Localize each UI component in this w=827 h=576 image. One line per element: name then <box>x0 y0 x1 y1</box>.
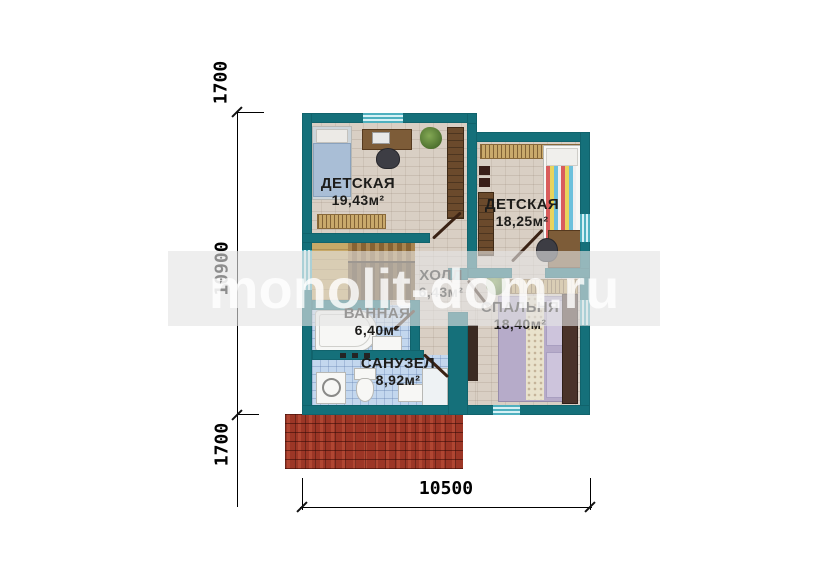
radiator-icon <box>510 279 578 294</box>
dimension-label-top-offset: 1700 <box>211 53 232 113</box>
room-name: САНУЗЕЛ <box>358 356 438 373</box>
dresser-icon <box>468 325 478 381</box>
dimension-label-height: 10900 <box>212 233 233 305</box>
laptop-icon <box>372 132 390 144</box>
room-area: 18,25м² <box>462 214 582 230</box>
room-area: 19,43м² <box>298 193 418 209</box>
room-label-hall: ХОЛЛ 6,43м² <box>401 268 481 300</box>
room-name: ДЕТСКАЯ <box>298 176 418 193</box>
room-label-wc: САНУЗЕЛ 8,92м² <box>358 356 438 388</box>
room-label-kids1: ДЕТСКАЯ 19,43м² <box>298 176 418 208</box>
room-area: 8,92м² <box>358 373 438 389</box>
pillow-icon <box>316 129 348 143</box>
staircase-upper-flight <box>348 243 415 263</box>
inner-wall-kids2-bedroom-right <box>545 268 590 278</box>
window <box>493 405 520 415</box>
top-dimension-stub <box>237 112 264 113</box>
inner-wall-kids1-hall <box>302 233 430 243</box>
washer-door-icon <box>322 378 341 397</box>
plant-icon <box>420 127 442 149</box>
room-area: 6,43м² <box>401 285 481 301</box>
radiator-icon <box>317 214 386 229</box>
outer-wall-bottom <box>302 405 590 415</box>
room-name: ДЕТСКАЯ <box>462 197 582 214</box>
horizontal-dimension-line <box>300 507 592 508</box>
window <box>363 113 403 123</box>
chair-icon <box>536 238 558 262</box>
room-name: ХОЛЛ <box>401 268 481 285</box>
staircase-railing <box>348 261 415 263</box>
shelf-knob <box>340 353 346 358</box>
window <box>302 250 312 290</box>
vertical-dimension-line <box>237 112 238 507</box>
staircase-landing <box>312 243 348 300</box>
window <box>580 300 590 325</box>
middle-dimension-stub <box>237 414 259 415</box>
room-name: СПАЛЬНЯ <box>460 300 580 317</box>
room-name: ВАННАЯ <box>337 306 417 323</box>
dimension-label-width: 10500 <box>396 478 496 499</box>
outer-wall-top-right <box>467 132 590 142</box>
speaker-icon <box>479 166 490 175</box>
speaker-icon <box>479 178 490 187</box>
room-area: 6,40м² <box>337 323 417 339</box>
floor-plan-canvas: 1700 10900 1700 10500 <box>0 0 827 576</box>
chair-icon <box>376 148 400 169</box>
room-area: 18,40м² <box>460 317 580 333</box>
roof-tiles <box>285 414 463 469</box>
room-label-bathroom: ВАННАЯ 6,40м² <box>337 306 417 338</box>
pillow-icon <box>546 148 578 166</box>
room-label-bedroom: СПАЛЬНЯ 18,40м² <box>460 300 580 332</box>
dimension-label-bottom-offset: 1700 <box>212 415 233 475</box>
room-label-kids2: ДЕТСКАЯ 18,25м² <box>462 197 582 229</box>
